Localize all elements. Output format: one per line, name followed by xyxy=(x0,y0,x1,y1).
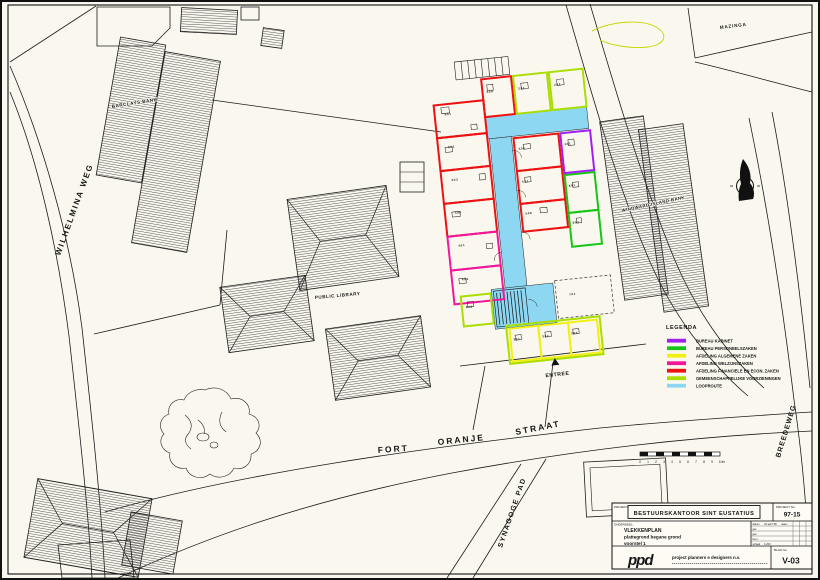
svg-text:AFDELING WELZIJNSZAKEN: AFDELING WELZIJNSZAKEN xyxy=(696,361,753,366)
svg-text:5: 5 xyxy=(679,460,681,464)
svg-text:5.0.4: 5.0.4 xyxy=(455,210,462,215)
svg-text:2.0.1: 2.0.1 xyxy=(518,86,525,91)
tree xyxy=(160,388,260,478)
walkway-1 xyxy=(473,366,485,430)
svg-text:6.0.1: 6.0.1 xyxy=(569,183,576,188)
legend-item: AFDELING WELZIJNSZAKEN xyxy=(667,361,753,366)
legend-item: AFDELING FINANCIELE EN ECON. ZAKEN xyxy=(667,369,779,374)
svg-text:1: 1 xyxy=(647,460,649,464)
street-straat: STRAAT xyxy=(514,418,561,437)
svg-text:6.0.2: 6.0.2 xyxy=(572,220,579,225)
svg-text:3.0.2: 3.0.2 xyxy=(542,334,549,339)
svg-text:6.0.3: 6.0.3 xyxy=(466,305,473,310)
svg-text:AFDELING FINANCIELE EN ECON. Z: AFDELING FINANCIELE EN ECON. ZAKEN xyxy=(696,369,779,374)
svg-text:7.0.1: 7.0.1 xyxy=(569,292,576,297)
room xyxy=(434,100,487,138)
legend-swatch xyxy=(667,384,686,388)
legend-item: AFDELING ALGEMENE ZAKEN xyxy=(667,354,756,359)
building-topleft-hatched xyxy=(180,8,237,35)
svg-text:gec.: gec. xyxy=(753,533,758,536)
scale-bar: 0 1 2 3 4 5 6 7 8 9 10m xyxy=(639,452,725,464)
room xyxy=(447,232,500,271)
room xyxy=(513,72,551,113)
room xyxy=(513,134,561,172)
room xyxy=(549,69,587,110)
svg-text:1:200: 1:200 xyxy=(764,542,771,546)
parcel-line-b xyxy=(94,305,220,334)
road-breedeweg-2 xyxy=(772,112,810,388)
street-fort: FORT xyxy=(377,443,409,455)
building-topleft-hatched-2 xyxy=(261,28,284,49)
svg-text:BUREAU PERSONEELSZAKEN: BUREAU PERSONEELSZAKEN xyxy=(696,346,757,351)
legend-swatch xyxy=(667,346,686,350)
road-mazinga-2 xyxy=(695,32,812,58)
svg-text:2.0.2: 2.0.2 xyxy=(554,82,561,87)
svg-text:8: 8 xyxy=(703,460,705,464)
svg-text:form.: form. xyxy=(753,537,759,541)
svg-text:2: 2 xyxy=(655,460,657,464)
svg-text:4: 4 xyxy=(671,460,673,464)
building-library-2 xyxy=(220,275,314,352)
legend: LEGENDA BUREAU KABINET BUREAU PERSONEELS… xyxy=(666,325,781,389)
street-breedeweg: BREEDEWEG xyxy=(775,404,798,459)
room xyxy=(520,199,568,232)
project-name: BESTUURSKANTOOR SINT EUSTATIUS xyxy=(634,511,755,517)
legend-swatch xyxy=(667,354,686,358)
rooms-purple xyxy=(560,130,594,173)
svg-text:6: 6 xyxy=(687,460,689,464)
parcel-line-a xyxy=(212,100,441,132)
street-synagoge-pad: SYNAGOGE PAD xyxy=(497,477,528,549)
svg-text:AFDELING ALGEMENE ZAKEN: AFDELING ALGEMENE ZAKEN xyxy=(696,354,756,359)
onderdeel-line2: plattegrond begane grond xyxy=(624,535,681,540)
svg-text:5.0.3: 5.0.3 xyxy=(451,177,458,182)
svg-text:1.0.1: 1.0.1 xyxy=(564,141,571,146)
title-block: PROJECT: BESTUURSKANTOOR SINT EUSTATIUS … xyxy=(612,503,812,569)
room xyxy=(565,172,599,213)
svg-text:7: 7 xyxy=(695,460,697,464)
legend-title: LEGENDA xyxy=(666,325,697,331)
building-library-main xyxy=(287,185,399,290)
onderdeel-line3: voorstel 1 xyxy=(624,541,646,546)
svg-text:3.0.3: 3.0.3 xyxy=(571,331,578,336)
svg-text:4.0.1: 4.0.1 xyxy=(458,243,465,248)
svg-text:3.0.1: 3.0.1 xyxy=(513,337,520,342)
legend-item: BUREAU PERSONEELSZAKEN xyxy=(667,346,757,351)
building-bottomleft-2 xyxy=(122,512,183,574)
svg-text:10m: 10m xyxy=(719,460,726,464)
room xyxy=(509,326,541,362)
legend-item: LOOPROUTE xyxy=(667,384,722,389)
legend-swatch xyxy=(667,369,686,373)
legend-item: GEMEENSCHAPPELIJKE VOORZIENINGEN xyxy=(667,376,781,381)
firm-name: project planners e designers n.v. xyxy=(672,555,740,560)
room xyxy=(437,133,490,171)
place-public-library: PUBLIC LIBRARY xyxy=(315,291,361,300)
room xyxy=(560,130,594,173)
mazinga-trail xyxy=(592,22,664,47)
svg-text:LOOPROUTE: LOOPROUTE xyxy=(696,384,722,389)
north-arrow-icon xyxy=(730,159,760,201)
room xyxy=(440,166,493,204)
street-wilhelmina-weg: WILHELMINA WEG xyxy=(53,162,95,257)
scale-ticks: 0 1 2 3 4 5 6 7 8 9 10m xyxy=(639,460,725,464)
svg-text:GEMEENSCHAPPELIJKE VOORZIENING: GEMEENSCHAPPELIJKE VOORZIENINGEN xyxy=(696,376,781,381)
site-plan-svg: 5.0.1 5.0.2 5.0.3 5.0.4 4.0.1 4.0.2 5.0.… xyxy=(0,0,820,580)
svg-text:naam: naam xyxy=(781,523,788,526)
room xyxy=(481,76,515,117)
floor-plan: 5.0.1 5.0.2 5.0.3 5.0.4 4.0.1 4.0.2 5.0.… xyxy=(429,48,620,388)
road-breedeweg-1 xyxy=(749,118,809,560)
onderdeel-label: ONDERDEEL: xyxy=(614,523,634,527)
room xyxy=(461,294,494,327)
project-number: 97-15 xyxy=(784,512,801,519)
svg-text:0: 0 xyxy=(639,460,641,464)
svg-text:5.0.6: 5.0.6 xyxy=(518,146,525,151)
svg-text:5.0.5: 5.0.5 xyxy=(486,89,493,94)
blad-number-label: BLAD No. xyxy=(774,548,788,552)
place-mazinga: MAZINGA xyxy=(720,22,747,30)
svg-text:5.0.1: 5.0.1 xyxy=(444,112,451,117)
building-small-steps xyxy=(400,162,424,192)
road-mazinga-3 xyxy=(695,62,812,92)
room xyxy=(444,199,497,237)
room xyxy=(517,166,565,204)
drawing-sheet: 5.0.1 5.0.2 5.0.3 5.0.4 4.0.1 4.0.2 5.0.… xyxy=(0,0,820,580)
room-dashed-hall xyxy=(555,275,615,319)
svg-text:9: 9 xyxy=(711,460,713,464)
project-number-label: PROJECT No. xyxy=(776,505,796,509)
svg-text:5.0.2: 5.0.2 xyxy=(448,144,455,149)
svg-text:3: 3 xyxy=(663,460,665,464)
legend-swatch xyxy=(667,339,686,343)
svg-text:5.0.8: 5.0.8 xyxy=(525,211,532,216)
building-library-3 xyxy=(325,316,430,401)
svg-text:BUREAU KABINET: BUREAU KABINET xyxy=(696,339,733,344)
svg-text:datum: datum xyxy=(753,522,760,526)
road-fortoranje-upper xyxy=(105,412,812,512)
legend-item: BUREAU KABINET xyxy=(667,339,733,344)
road-wilhelmina-branch xyxy=(10,6,96,62)
road-mazinga-1 xyxy=(688,8,695,58)
entree-label: ENTREE xyxy=(545,371,570,379)
firm-logo: ppd xyxy=(627,552,654,569)
buildings xyxy=(24,7,709,578)
blad-number: V-03 xyxy=(782,556,800,566)
svg-text:schaal: schaal xyxy=(753,542,761,546)
onderdeel-line1: VLEKKENPLAN xyxy=(624,528,662,534)
svg-text:4.0.2: 4.0.2 xyxy=(462,277,469,282)
building-topleft-small xyxy=(241,7,259,20)
svg-text:22 april '98: 22 april '98 xyxy=(764,522,777,526)
svg-text:5.0.7: 5.0.7 xyxy=(522,179,529,184)
svg-text:get.: get. xyxy=(753,527,758,531)
room xyxy=(569,210,602,247)
corridor-looproute xyxy=(473,106,609,329)
project-label: PROJECT: xyxy=(614,505,629,509)
legend-swatch xyxy=(667,376,686,380)
legend-swatch xyxy=(667,361,686,365)
